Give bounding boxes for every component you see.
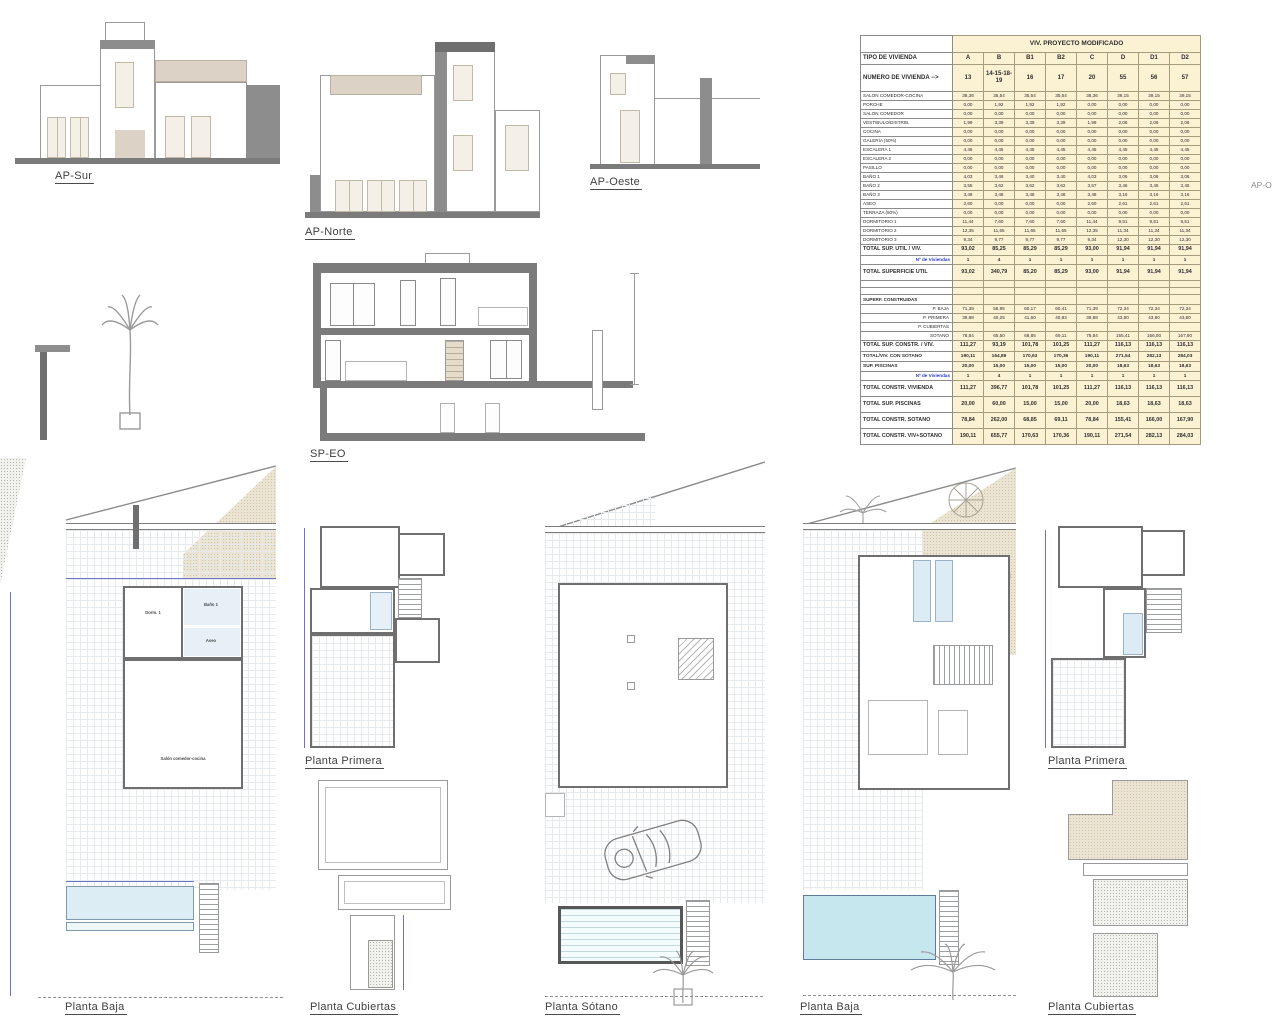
table-cell: 0,00 bbox=[1170, 164, 1201, 173]
table-cell: 71,39 bbox=[1077, 305, 1108, 314]
row-label: TOTAL SUP. PISCINAS bbox=[861, 397, 953, 413]
row-label: SALON COMEDOR-COCINA bbox=[861, 92, 953, 101]
table-cell: 0,00 bbox=[1139, 101, 1170, 110]
table-cell: 69,11 bbox=[1046, 332, 1077, 341]
table-cell: 11,65 bbox=[1015, 227, 1046, 236]
table-cell: 0,00 bbox=[984, 164, 1015, 173]
table-cell: 38,36 bbox=[1077, 92, 1108, 101]
table-title: VIV. PROYECTO MODIFICADO bbox=[953, 36, 1201, 53]
row-label: COCINA bbox=[861, 128, 953, 137]
table-cell bbox=[953, 281, 984, 288]
table-cell: 9,77 bbox=[984, 236, 1015, 245]
table-cell: 1 bbox=[1108, 256, 1139, 265]
table-cell bbox=[1046, 323, 1077, 332]
table-cell: 15,00 bbox=[1015, 397, 1046, 413]
table-cell: 68,85 bbox=[1015, 413, 1046, 429]
table-cell: 18,63 bbox=[1139, 362, 1170, 372]
row-label: P. CUBIERTAS bbox=[861, 323, 953, 332]
table-cell: 3,40 bbox=[1046, 173, 1077, 182]
row-label: BAÑO 2 bbox=[861, 182, 953, 191]
table-cell: 15,00 bbox=[1046, 362, 1077, 372]
table-cell: 11,34 bbox=[1139, 227, 1170, 236]
plan-planta-cubiertas-1 bbox=[303, 775, 458, 993]
table-cell bbox=[1108, 288, 1139, 295]
table-cell: 3,48 bbox=[953, 191, 984, 200]
table-cell: 0,00 bbox=[1015, 155, 1046, 164]
table-cell: 0,00 bbox=[1139, 110, 1170, 119]
table-cell: 41,60 bbox=[1015, 314, 1046, 323]
table-cell: 3,55 bbox=[953, 182, 984, 191]
table-cell: D bbox=[1108, 53, 1139, 65]
row-label: SUPERF. CONSTRUIDAS bbox=[861, 295, 953, 305]
row-label: DORMITORIO 2 bbox=[861, 227, 953, 236]
table-cell: 3,48 bbox=[1015, 191, 1046, 200]
table-cell: 78,84 bbox=[953, 332, 984, 341]
table-cell: 60,17 bbox=[1015, 305, 1046, 314]
table-cell: 18,63 bbox=[1170, 362, 1201, 372]
table-cell: 3,39 bbox=[1015, 119, 1046, 128]
table-cell: 18,63 bbox=[1170, 397, 1201, 413]
neighbor-plot-fragment bbox=[0, 458, 26, 586]
table-cell: 0,00 bbox=[1046, 200, 1077, 209]
table-cell: 0,00 bbox=[1077, 128, 1108, 137]
table-cell: 2,06 bbox=[1170, 119, 1201, 128]
table-cell: 396,77 bbox=[984, 381, 1015, 397]
table-cell: 0,00 bbox=[1077, 101, 1108, 110]
table-cell bbox=[1046, 295, 1077, 305]
table-cell: 111,27 bbox=[953, 381, 984, 397]
table-cell: 13 bbox=[953, 65, 984, 92]
table-cell: 93,00 bbox=[1077, 245, 1108, 256]
table-cell: 0,00 bbox=[984, 200, 1015, 209]
table-cell: 0,00 bbox=[1139, 155, 1170, 164]
table-cell: 0,00 bbox=[953, 101, 984, 110]
table-cell bbox=[984, 281, 1015, 288]
label-planta-baja-1: Planta Baja bbox=[65, 1001, 127, 1015]
table-cell: 190,11 bbox=[953, 429, 984, 445]
table-cell: 0,00 bbox=[1108, 128, 1139, 137]
table-cell: 3,06 bbox=[1170, 173, 1201, 182]
table-cell: 0,00 bbox=[984, 209, 1015, 218]
plan-planta-sotano bbox=[543, 458, 768, 1003]
table-cell: B2 bbox=[1046, 53, 1077, 65]
table-cell bbox=[1077, 281, 1108, 288]
row-label: ESCALERA 2 bbox=[861, 155, 953, 164]
table-cell: 0,00 bbox=[953, 164, 984, 173]
table-cell: 1 bbox=[1170, 256, 1201, 265]
label-planta-baja-2: Planta Baja bbox=[800, 1001, 862, 1015]
table-cell: 78,84 bbox=[953, 413, 984, 429]
row-label: TOTAL SUPERFICIE UTIL bbox=[861, 265, 953, 281]
row-label: ASEO bbox=[861, 200, 953, 209]
table-cell: 15,00 bbox=[984, 362, 1015, 372]
row-label: TERRAZA (50%) bbox=[861, 209, 953, 218]
table-cell: 0,00 bbox=[1108, 110, 1139, 119]
row-label: DORMITORIO 3 bbox=[861, 236, 953, 245]
table-cell: 1,99 bbox=[953, 119, 984, 128]
table-cell: 3,39 bbox=[1046, 119, 1077, 128]
table-cell: 4,45 bbox=[1046, 146, 1077, 155]
row-label: P. BAJA bbox=[861, 305, 953, 314]
table-cell: 2,61 bbox=[1170, 200, 1201, 209]
table-cell: 91,94 bbox=[1139, 265, 1170, 281]
table-cell: 85,29 bbox=[1046, 265, 1077, 281]
row-label: PORCHE bbox=[861, 101, 953, 110]
table-cell: 0,00 bbox=[1139, 137, 1170, 146]
table-cell bbox=[1170, 288, 1201, 295]
table-cell: 3,16 bbox=[1139, 191, 1170, 200]
table-cell: 0,00 bbox=[1108, 155, 1139, 164]
row-label: DORMITORIO 1 bbox=[861, 218, 953, 227]
table-cell: 0,00 bbox=[1170, 110, 1201, 119]
label-planta-primera-2: Planta Primera bbox=[1048, 755, 1127, 769]
table-cell: 11,65 bbox=[1046, 227, 1077, 236]
table-cell: 0,00 bbox=[1170, 128, 1201, 137]
summary-table: VIV. PROYECTO MODIFICADOTIPO DE VIVIENDA… bbox=[860, 35, 1201, 445]
table-cell: 78,84 bbox=[1077, 413, 1108, 429]
table-cell: 9,51 bbox=[1139, 218, 1170, 227]
table-cell bbox=[1015, 281, 1046, 288]
table-cell: 271,54 bbox=[1108, 352, 1139, 362]
table-cell: D1 bbox=[1139, 53, 1170, 65]
table-cell: 3,57 bbox=[1077, 182, 1108, 191]
table-cell: 12,35 bbox=[953, 227, 984, 236]
table-cell: 39,88 bbox=[1077, 314, 1108, 323]
table-cell: 282,13 bbox=[1139, 429, 1170, 445]
row-label: TOTAL SUP. CONSTR. / VIV. bbox=[861, 341, 953, 352]
table-cell: 1,92 bbox=[984, 101, 1015, 110]
table-cell: 170,63 bbox=[1015, 429, 1046, 445]
table-cell bbox=[1108, 295, 1139, 305]
label-planta-primera-1: Planta Primera bbox=[305, 755, 384, 769]
table-cell: 340,79 bbox=[984, 265, 1015, 281]
table-cell: 1 bbox=[1077, 372, 1108, 381]
dimension-line-left bbox=[10, 592, 11, 996]
row-label: GALERIA (50%) bbox=[861, 137, 953, 146]
table-cell: 16 bbox=[1015, 65, 1046, 92]
palm-tree-sketch bbox=[648, 953, 718, 1008]
table-cell: 282,13 bbox=[1139, 352, 1170, 362]
table-cell: 1 bbox=[1046, 256, 1077, 265]
row-label: SALON COMEDOR bbox=[861, 110, 953, 119]
table-cell: 9,34 bbox=[953, 236, 984, 245]
row-label: VESTIBULO/DISTRIB. bbox=[861, 119, 953, 128]
table-cell: 1 bbox=[1139, 256, 1170, 265]
table-cell: 0,00 bbox=[1077, 110, 1108, 119]
table-cell: 1 bbox=[1170, 372, 1201, 381]
table-cell: 72,34 bbox=[1108, 305, 1139, 314]
table-cell: 12,30 bbox=[1170, 236, 1201, 245]
table-cell bbox=[953, 295, 984, 305]
table-cell: 284,03 bbox=[1170, 352, 1201, 362]
table-cell: 40,83 bbox=[1046, 314, 1077, 323]
table-cell: 0,00 bbox=[984, 137, 1015, 146]
table-cell: 0,00 bbox=[1139, 164, 1170, 173]
table-cell: 20,00 bbox=[953, 362, 984, 372]
table-cell: 56 bbox=[1139, 65, 1170, 92]
table-cell: 3,46 bbox=[1139, 182, 1170, 191]
table-cell: 35,54 bbox=[1015, 92, 1046, 101]
table-cell: 1 bbox=[1139, 372, 1170, 381]
table-cell bbox=[1015, 288, 1046, 295]
table-cell: 12,30 bbox=[1139, 236, 1170, 245]
table-cell: 0,00 bbox=[1077, 164, 1108, 173]
table-cell: 18,63 bbox=[1139, 397, 1170, 413]
table-cell: 15,00 bbox=[1015, 362, 1046, 372]
row-label: TIPO DE VIVIENDA bbox=[861, 53, 953, 65]
row-label: TOTAL CONSTR. VIVIENDA bbox=[861, 381, 953, 397]
table-cell: 91,94 bbox=[1139, 245, 1170, 256]
table-cell: 0,00 bbox=[984, 110, 1015, 119]
table-cell: 2,06 bbox=[1139, 119, 1170, 128]
row-label: TOTAL SUP. UTIL / VIV. bbox=[861, 245, 953, 256]
table-cell: 4,45 bbox=[953, 146, 984, 155]
plan-planta-primera-1 bbox=[300, 518, 460, 753]
table-cell: 72,34 bbox=[1170, 305, 1201, 314]
table-cell: 3,48 bbox=[1046, 191, 1077, 200]
table-cell: 0,00 bbox=[953, 155, 984, 164]
row-label bbox=[861, 288, 953, 295]
table-cell: 167,90 bbox=[1170, 413, 1201, 429]
table-cell: 655,77 bbox=[984, 429, 1015, 445]
table-cell bbox=[984, 323, 1015, 332]
table-cell: 15,00 bbox=[1046, 397, 1077, 413]
table-cell: 12,35 bbox=[1077, 227, 1108, 236]
table-cell: 4 bbox=[984, 372, 1015, 381]
table-cell: 11,44 bbox=[1077, 218, 1108, 227]
table-cell: 65,50 bbox=[984, 332, 1015, 341]
table-cell: 0,00 bbox=[1139, 128, 1170, 137]
table-cell: 0,00 bbox=[1015, 200, 1046, 209]
table-cell: 0,00 bbox=[1015, 137, 1046, 146]
table-cell: 3,16 bbox=[1108, 191, 1139, 200]
table-cell: 0,00 bbox=[1046, 209, 1077, 218]
table-cell: 68,85 bbox=[1015, 332, 1046, 341]
car-sketch bbox=[593, 803, 713, 898]
table-cell: 3,62 bbox=[1015, 182, 1046, 191]
table-cell: B1 bbox=[1015, 53, 1046, 65]
table-cell: 93,19 bbox=[984, 341, 1015, 352]
table-cell: 1 bbox=[953, 256, 984, 265]
table-cell: 71,39 bbox=[953, 305, 984, 314]
table-cell: 0,00 bbox=[1108, 164, 1139, 173]
plan-planta-cubiertas-2 bbox=[1053, 775, 1193, 1003]
table-cell: 2,61 bbox=[1139, 200, 1170, 209]
elevation-ap-sur bbox=[15, 22, 280, 168]
row-label: TOTAL CONSTR. SOTANO bbox=[861, 413, 953, 429]
label-ap-sur: AP-Sur bbox=[55, 170, 94, 184]
table-cell: 170,63 bbox=[1015, 352, 1046, 362]
row-label: PASILLO bbox=[861, 164, 953, 173]
table-cell: 2,61 bbox=[1108, 200, 1139, 209]
table-cell: 93,00 bbox=[1077, 265, 1108, 281]
table-cell: 11,65 bbox=[984, 227, 1015, 236]
table-cell: 60,00 bbox=[984, 397, 1015, 413]
table-cell: 0,00 bbox=[953, 137, 984, 146]
table-cell: 35,54 bbox=[984, 92, 1015, 101]
row-label: SUP. PISCINAS bbox=[861, 362, 953, 372]
table-cell: 7,60 bbox=[1046, 218, 1077, 227]
table-cell: 18,63 bbox=[1108, 397, 1139, 413]
table-cell: 0,00 bbox=[1046, 164, 1077, 173]
table-cell: 20,00 bbox=[1077, 362, 1108, 372]
label-ap-oeste: AP-Oeste bbox=[590, 176, 642, 190]
row-label: BAÑO 1 bbox=[861, 173, 953, 182]
table-cell: 116,13 bbox=[1108, 341, 1139, 352]
table-cell: 3,46 bbox=[984, 173, 1015, 182]
table-cell: 39,15 bbox=[1108, 92, 1139, 101]
table-cell: 3,06 bbox=[1108, 173, 1139, 182]
table-cell: 3,39 bbox=[984, 119, 1015, 128]
table-cell bbox=[1015, 295, 1046, 305]
row-label: BAÑO 3 bbox=[861, 191, 953, 200]
table-cell bbox=[953, 323, 984, 332]
table-cell: 40,25 bbox=[984, 314, 1015, 323]
table-cell: 1 bbox=[1108, 372, 1139, 381]
table-cell bbox=[984, 288, 1015, 295]
table-cell: C bbox=[1077, 53, 1108, 65]
table-cell: 0,00 bbox=[953, 209, 984, 218]
table-cell: 164,89 bbox=[984, 352, 1015, 362]
table-cell: 1,92 bbox=[1015, 101, 1046, 110]
table-cell bbox=[1015, 323, 1046, 332]
table-cell: 57 bbox=[1170, 65, 1201, 92]
table-cell: 155,41 bbox=[1108, 413, 1139, 429]
table-cell: 3,46 bbox=[1108, 182, 1139, 191]
table-cell: 101,78 bbox=[1015, 381, 1046, 397]
table-cell: 35,54 bbox=[1046, 92, 1077, 101]
table-cell: 116,13 bbox=[1170, 341, 1201, 352]
label-planta-sotano: Planta Sótano bbox=[545, 1001, 620, 1015]
table-cell: 12,30 bbox=[1108, 236, 1139, 245]
table-cell: 9,77 bbox=[1046, 236, 1077, 245]
table-cell: 101,78 bbox=[1015, 341, 1046, 352]
table-cell: 167,90 bbox=[1170, 332, 1201, 341]
table-cell: 93,02 bbox=[953, 245, 984, 256]
table-cell: 43,80 bbox=[1139, 314, 1170, 323]
row-label: Nº de Viviendas bbox=[861, 256, 953, 265]
table-cell: 14-15-18-19 bbox=[984, 65, 1015, 92]
table-cell: 60,41 bbox=[1046, 305, 1077, 314]
table-cell: 116,13 bbox=[1139, 381, 1170, 397]
row-label: P. PRIMERA bbox=[861, 314, 953, 323]
table-cell: 91,94 bbox=[1170, 245, 1201, 256]
table-cell: 85,29 bbox=[1046, 245, 1077, 256]
table-cell: 0,00 bbox=[1046, 155, 1077, 164]
table-cell: 3,40 bbox=[1015, 173, 1046, 182]
table-cell: 85,29 bbox=[1015, 245, 1046, 256]
table-cell: 4,45 bbox=[1015, 146, 1046, 155]
label-sp-eo: SP-EO bbox=[310, 448, 348, 462]
table-cell: 93,02 bbox=[953, 265, 984, 281]
table-cell bbox=[1108, 281, 1139, 288]
table-cell: 7,60 bbox=[1015, 218, 1046, 227]
table-cell: 0,00 bbox=[1139, 209, 1170, 218]
table-cell bbox=[1139, 295, 1170, 305]
table-cell: 4,45 bbox=[1139, 146, 1170, 155]
table-cell: 2,06 bbox=[1108, 119, 1139, 128]
table-cell: 3,48 bbox=[1077, 191, 1108, 200]
table-cell: 0,00 bbox=[1170, 101, 1201, 110]
label-ap-norte: AP-Norte bbox=[305, 226, 355, 240]
table-cell: 0,00 bbox=[1108, 101, 1139, 110]
table-cell: 101,25 bbox=[1046, 381, 1077, 397]
table-cell: 38,36 bbox=[953, 92, 984, 101]
table-cell: 85,25 bbox=[984, 245, 1015, 256]
table-cell bbox=[1170, 281, 1201, 288]
table-cell: 4,45 bbox=[984, 146, 1015, 155]
section-sp-eo bbox=[300, 245, 645, 445]
table-cell: 166,00 bbox=[1139, 332, 1170, 341]
table-cell: 0,00 bbox=[1046, 110, 1077, 119]
table-cell: 111,27 bbox=[1077, 381, 1108, 397]
table-cell: 190,11 bbox=[1077, 429, 1108, 445]
table-cell bbox=[1046, 288, 1077, 295]
table-cell: 170,36 bbox=[1046, 352, 1077, 362]
table-cell: 0,00 bbox=[1077, 209, 1108, 218]
table-cell bbox=[1139, 288, 1170, 295]
row-label: NUMERO DE VIVIENDA --> bbox=[861, 65, 953, 92]
table-cell: 170,36 bbox=[1046, 429, 1077, 445]
table-cell: 111,27 bbox=[1077, 341, 1108, 352]
table-cell: 3,62 bbox=[984, 182, 1015, 191]
table-cell: 0,00 bbox=[984, 128, 1015, 137]
label-planta-cubiertas-2: Planta Cubiertas bbox=[1048, 1001, 1136, 1015]
table-cell: 3,16 bbox=[1170, 191, 1201, 200]
table-cell: 0,00 bbox=[1077, 155, 1108, 164]
table-cell: 4 bbox=[984, 256, 1015, 265]
row-label: Nº de Viviendas bbox=[861, 372, 953, 381]
label-planta-cubiertas-1: Planta Cubiertas bbox=[310, 1001, 398, 1015]
table-cell: 0,00 bbox=[1046, 128, 1077, 137]
table-cell: 0,00 bbox=[1046, 137, 1077, 146]
elevation-ap-norte bbox=[305, 40, 540, 222]
table-cell: 0,00 bbox=[1108, 137, 1139, 146]
table-cell: 0,00 bbox=[1015, 110, 1046, 119]
table-cell: 17 bbox=[1046, 65, 1077, 92]
table-cell: 91,94 bbox=[1170, 265, 1201, 281]
table-cell: 91,94 bbox=[1108, 265, 1139, 281]
plan-planta-baja-2 bbox=[798, 460, 1026, 1003]
elevation-ap-oeste bbox=[590, 55, 760, 173]
table-cell: 91,94 bbox=[1108, 245, 1139, 256]
table-cell: 284,03 bbox=[1170, 429, 1201, 445]
table-cell bbox=[1170, 323, 1201, 332]
table-cell bbox=[1139, 323, 1170, 332]
row-label bbox=[861, 281, 953, 288]
table-cell: 20 bbox=[1077, 65, 1108, 92]
table-cell: 0,00 bbox=[1015, 209, 1046, 218]
table-cell: B bbox=[984, 53, 1015, 65]
table-cell: 20,00 bbox=[1077, 397, 1108, 413]
table-cell: 4,45 bbox=[1108, 146, 1139, 155]
plan-planta-baja-1: Dorm. 1 Baño 1 Aseo Salón comedor-cocina bbox=[28, 458, 288, 1003]
table-cell: 3,48 bbox=[984, 191, 1015, 200]
table-cell: 9,77 bbox=[1015, 236, 1046, 245]
table-cell: 9,51 bbox=[1108, 218, 1139, 227]
table-cell: 190,11 bbox=[953, 352, 984, 362]
table-cell: 39,15 bbox=[1170, 92, 1201, 101]
row-label: TOTAL CONSTR. VIV+SOTANO bbox=[861, 429, 953, 445]
table-cell: 1 bbox=[1015, 256, 1046, 265]
table-cell: 166,00 bbox=[1139, 413, 1170, 429]
table-cell: 85,20 bbox=[1015, 265, 1046, 281]
table-cell: 111,27 bbox=[953, 341, 984, 352]
table-cell: 56,95 bbox=[984, 305, 1015, 314]
table-cell: 0,00 bbox=[1015, 164, 1046, 173]
table-cell: 11,34 bbox=[1108, 227, 1139, 236]
table-cell: 43,80 bbox=[1108, 314, 1139, 323]
